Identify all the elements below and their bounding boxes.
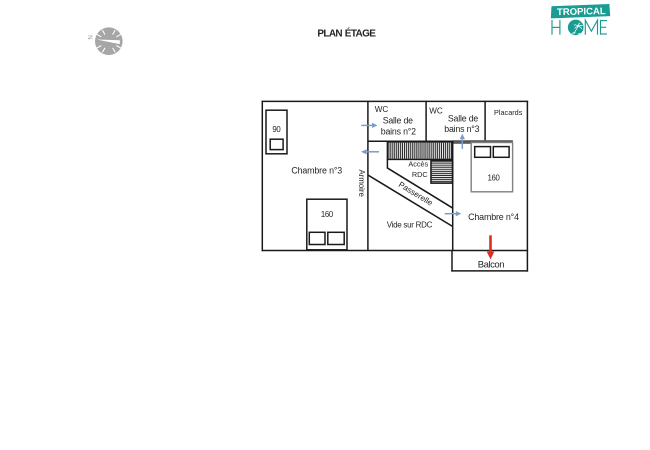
svg-text:PLAN ÉTAGE: PLAN ÉTAGE [317, 27, 376, 40]
svg-text:Balcon: Balcon [478, 260, 505, 271]
svg-text:90: 90 [272, 125, 281, 134]
svg-text:N: N [88, 35, 95, 40]
svg-text:RDC: RDC [412, 170, 428, 179]
svg-text:bains n°3: bains n°3 [444, 124, 479, 134]
svg-text:Salle de: Salle de [383, 115, 413, 125]
svg-text:WC: WC [375, 105, 389, 114]
svg-text:Chambre n°3: Chambre n°3 [291, 166, 342, 176]
svg-text:Placards: Placards [494, 108, 523, 117]
svg-text:WC: WC [429, 107, 443, 116]
svg-text:Vide sur RDC: Vide sur RDC [387, 221, 433, 230]
svg-text:Armoire: Armoire [357, 170, 366, 197]
svg-text:Accès: Accès [408, 159, 428, 168]
svg-text:160: 160 [321, 210, 334, 219]
svg-text:Salle de: Salle de [448, 114, 478, 124]
svg-text:Chambre n°4: Chambre n°4 [468, 212, 519, 222]
svg-text:TROPICAL: TROPICAL [557, 6, 606, 18]
svg-text:bains n°2: bains n°2 [381, 127, 416, 137]
svg-text:160: 160 [487, 173, 500, 182]
